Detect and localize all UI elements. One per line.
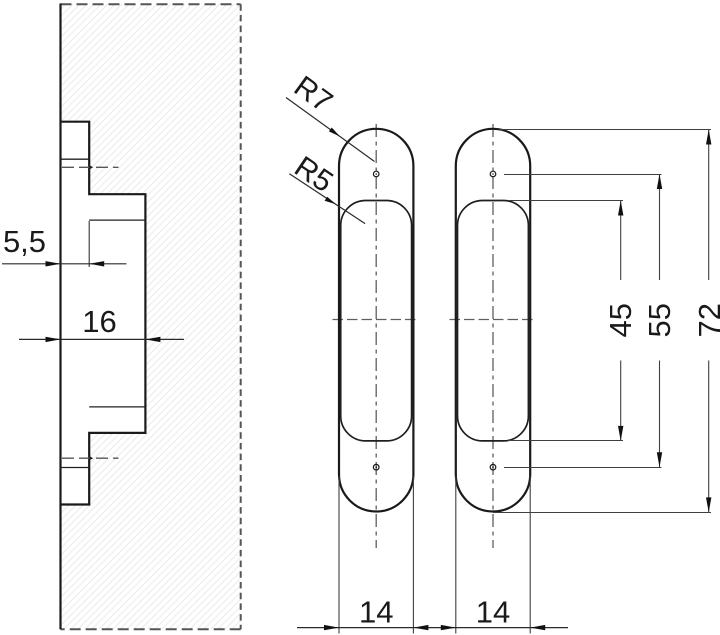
svg-text:45: 45	[603, 303, 638, 337]
svg-text:5,5: 5,5	[3, 224, 46, 259]
svg-text:R7: R7	[288, 70, 338, 119]
svg-text:72: 72	[692, 303, 720, 337]
svg-text:14: 14	[476, 594, 510, 629]
svg-text:55: 55	[642, 303, 677, 337]
svg-text:14: 14	[359, 594, 393, 629]
svg-text:R5: R5	[288, 150, 338, 199]
svg-text:16: 16	[82, 304, 116, 339]
